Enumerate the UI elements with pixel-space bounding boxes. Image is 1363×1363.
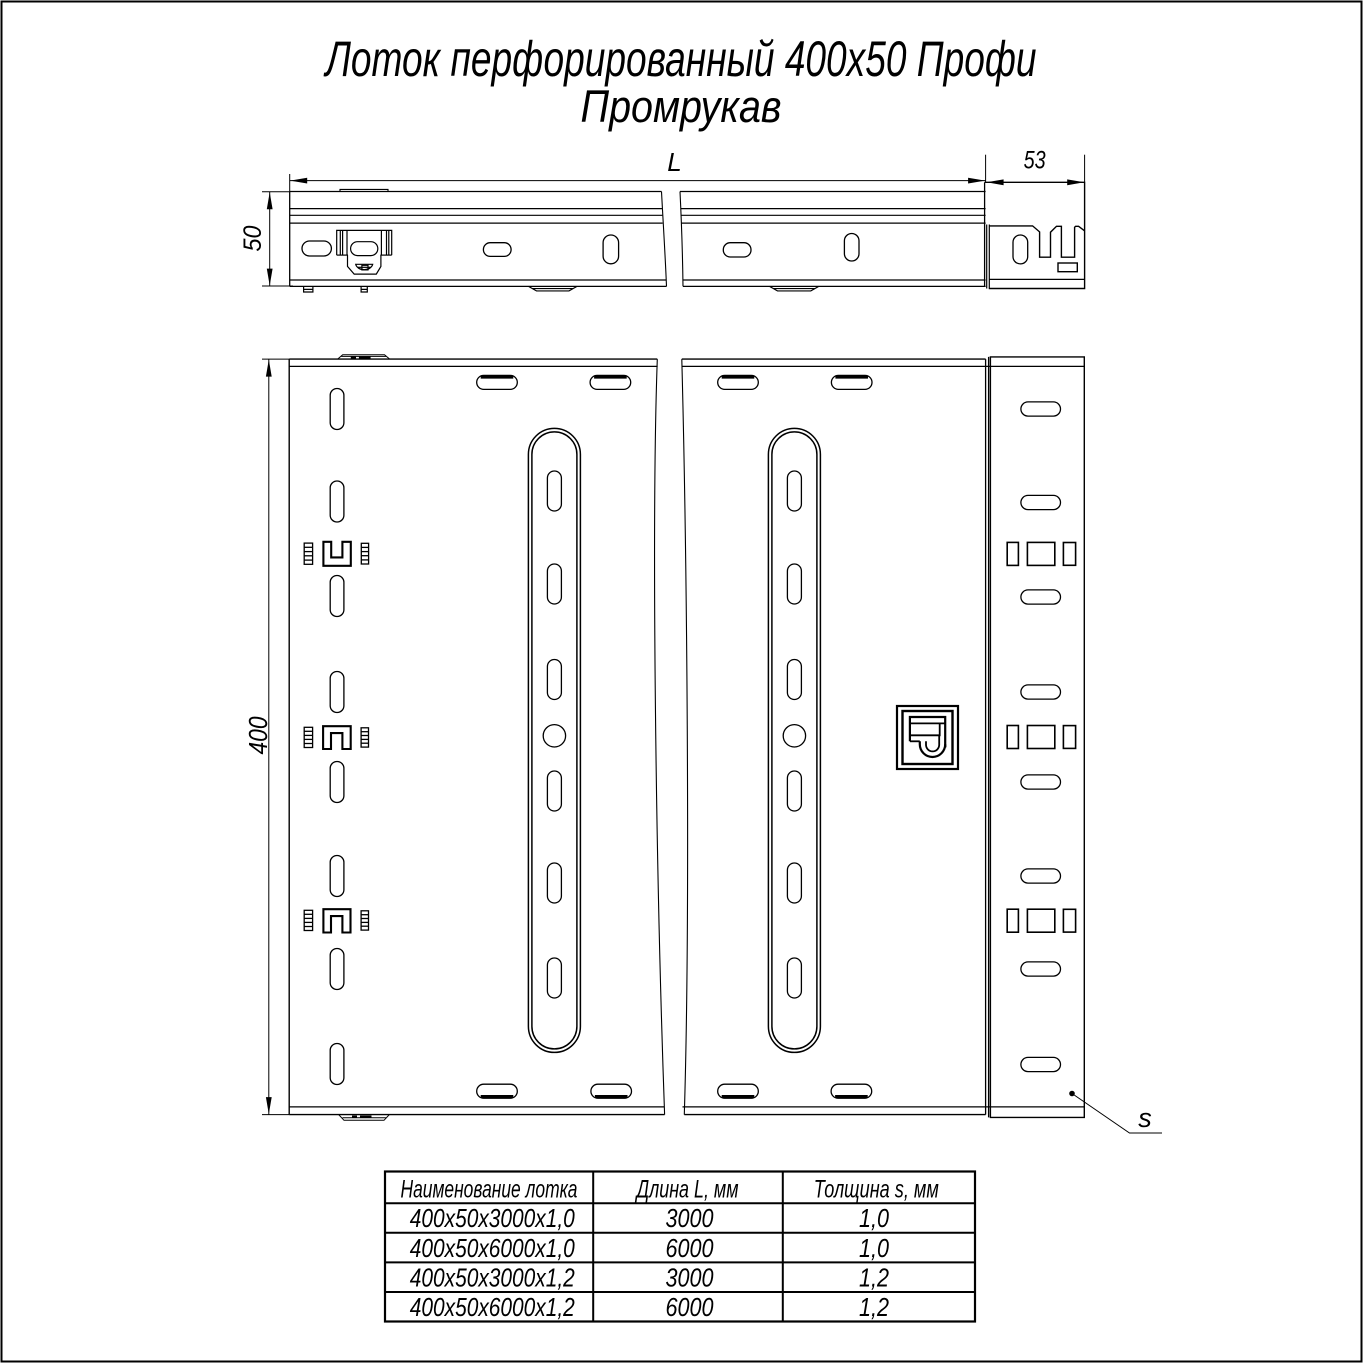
svg-text:3000: 3000 [666, 1263, 714, 1293]
svg-text:1,0: 1,0 [859, 1233, 889, 1263]
svg-text:L: L [667, 147, 681, 177]
svg-text:Длина L, мм: Длина L, мм [634, 1175, 738, 1203]
svg-text:400: 400 [243, 716, 273, 754]
svg-text:Лоток перфорированный 400х50 П: Лоток перфорированный 400х50 Профи [323, 31, 1036, 87]
svg-text:1,2: 1,2 [859, 1292, 889, 1322]
svg-text:Наименование лотка: Наименование лотка [401, 1175, 578, 1203]
svg-text:Толщина s, мм: Толщина s, мм [814, 1175, 939, 1203]
svg-text:Промрукав: Промрукав [581, 81, 782, 132]
svg-text:6000: 6000 [666, 1233, 714, 1263]
svg-text:53: 53 [1024, 147, 1046, 175]
svg-text:50: 50 [239, 225, 267, 251]
svg-text:1,0: 1,0 [859, 1203, 889, 1233]
svg-text:400х50х6000х1,2: 400х50х6000х1,2 [410, 1292, 575, 1322]
svg-text:1,2: 1,2 [859, 1263, 889, 1293]
svg-text:3000: 3000 [666, 1203, 714, 1233]
svg-text:6000: 6000 [666, 1292, 714, 1322]
svg-text:s: s [1138, 1103, 1152, 1133]
svg-text:400х50х3000х1,2: 400х50х3000х1,2 [410, 1263, 575, 1293]
svg-text:400х50х3000х1,0: 400х50х3000х1,0 [410, 1203, 575, 1233]
svg-text:400х50х6000х1,0: 400х50х6000х1,0 [410, 1233, 575, 1263]
